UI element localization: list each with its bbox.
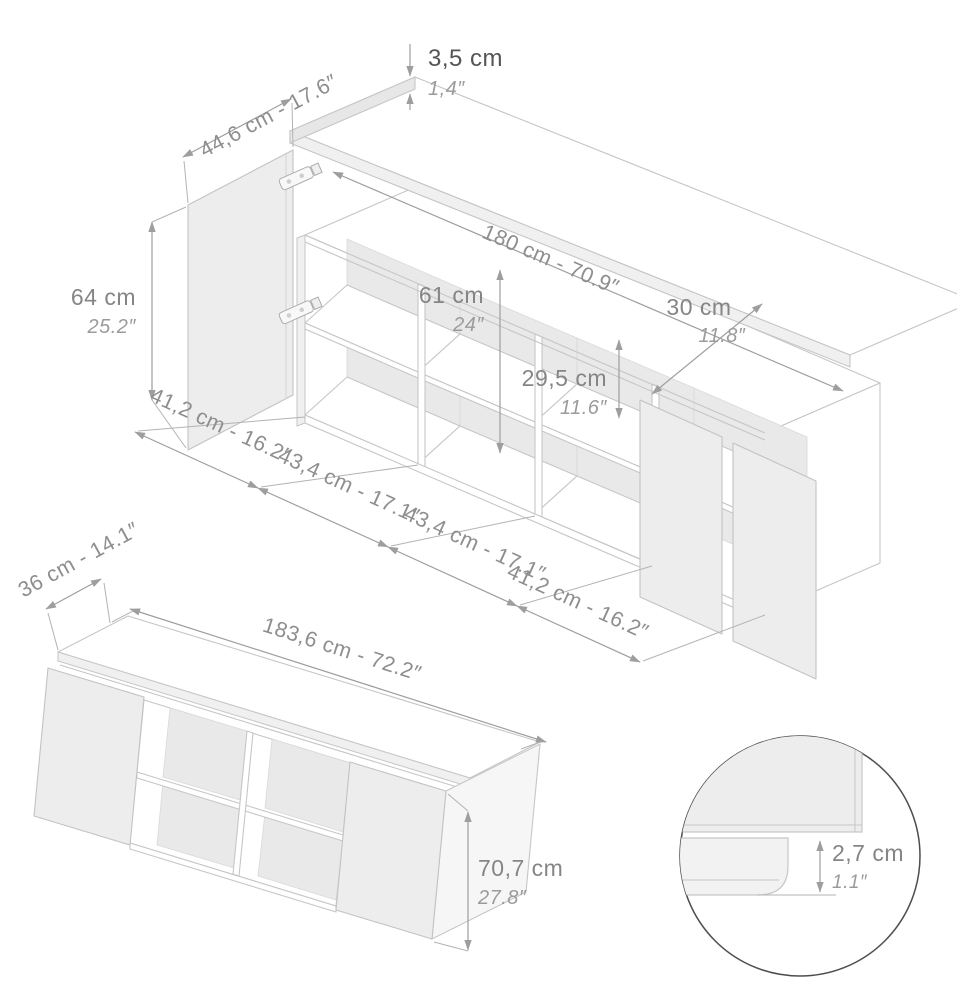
dim-depth-label: 36 cm - 14.1″ <box>14 517 143 602</box>
plinth-detail-view: 2,7 cm 1.1″ <box>656 730 920 976</box>
dim-top-depth-in-label: 11.8″ <box>698 325 745 347</box>
dim-height-in-label: 25.2″ <box>86 316 136 338</box>
sideboard-assembled-view <box>34 616 540 939</box>
dim-plinth-cm-label: 2,7 cm <box>832 840 904 866</box>
right-door-2 <box>733 443 816 679</box>
dim-interior-height-cm-label: 61 cm <box>419 282 484 308</box>
divider-2 <box>535 334 542 517</box>
dim-total-height-cm-label: 70,7 cm <box>478 855 563 881</box>
assembled-right-door <box>336 762 446 939</box>
dim-thickness-in-label: 1,4″ <box>428 78 465 100</box>
dim-thickness-cm-label: 3,5 cm <box>428 45 503 72</box>
diagram-canvas: 3,5 cm 1,4″ 44,6 cm - 17.6″ 180 cm - 70.… <box>0 0 957 997</box>
dim-total-height-in-label: 27.8″ <box>477 887 527 909</box>
dim-interior-height-in-label: 24″ <box>452 314 484 336</box>
assembled-left-door <box>34 668 144 845</box>
dim-opening-in-label: 11.6″ <box>560 397 607 419</box>
dim-plinth-in-label: 1.1″ <box>832 872 868 893</box>
dim-height-cm-label: 64 cm <box>71 284 136 310</box>
furniture-dimension-diagram: 3,5 cm 1,4″ 44,6 cm - 17.6″ 180 cm - 70.… <box>0 0 957 997</box>
divider-1 <box>418 284 425 467</box>
dim-top-depth-cm-label: 30 cm <box>666 294 731 320</box>
detail-cabinet-corner <box>660 730 862 832</box>
plinth-foot <box>656 838 788 895</box>
dim-opening-cm-label: 29,5 cm <box>522 365 607 391</box>
carcass-left-edge <box>297 235 305 426</box>
dim-compartment-4-label: 41,2 cm - 16.2″ <box>504 559 653 644</box>
right-door-1 <box>640 400 722 634</box>
